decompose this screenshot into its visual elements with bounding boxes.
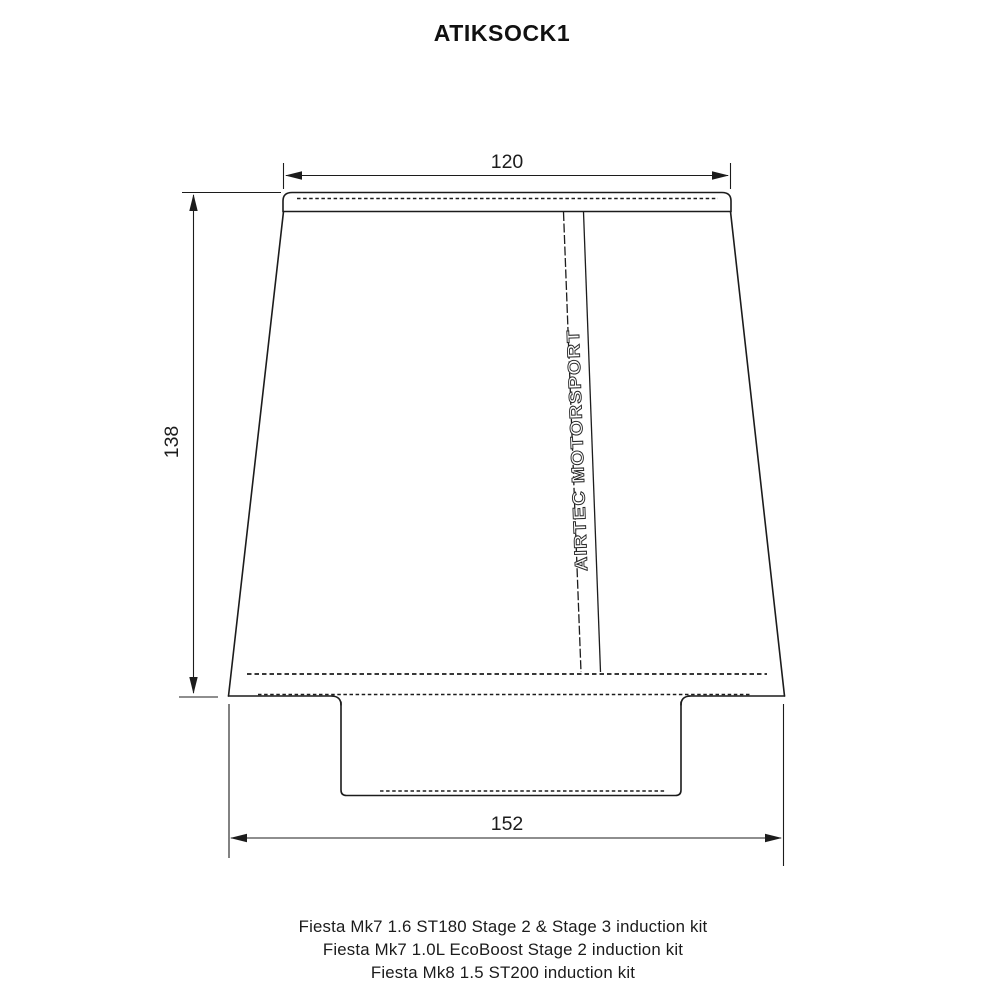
- dimension-base-width: 152: [229, 704, 784, 866]
- fitment-line: Fiesta Mk8 1.5 ST200 induction kit: [371, 963, 635, 982]
- arrow-left-icon: [285, 171, 302, 179]
- brand-strip-label: AIRTEC MOTORSPORT: [563, 329, 591, 572]
- dimension-top-width: 120: [284, 151, 731, 189]
- product-technical-drawing: ATIKSOCK1 AIRTEC MOTORSPORT: [0, 0, 1000, 1000]
- fitment-line: Fiesta Mk7 1.6 ST180 Stage 2 & Stage 3 i…: [299, 917, 708, 936]
- part-number-title: ATIKSOCK1: [434, 20, 571, 46]
- cone-left-edge: [229, 212, 284, 697]
- arrow-right-icon: [712, 171, 729, 179]
- neck-left-fillet: [332, 696, 341, 705]
- neck-collar: [332, 696, 690, 796]
- dimension-top-width-label: 120: [491, 151, 524, 173]
- arrow-up-icon: [189, 194, 197, 211]
- dimension-height: 138: [161, 193, 281, 698]
- neck-right-fillet: [681, 696, 690, 705]
- arrow-left-icon: [230, 834, 247, 842]
- cone-right-edge: [731, 212, 785, 697]
- filter-body: AIRTEC MOTORSPORT: [229, 193, 785, 796]
- arrow-down-icon: [189, 677, 197, 694]
- neck-outline: [341, 702, 681, 796]
- dimension-height-label: 138: [161, 426, 183, 459]
- dimension-base-width-label: 152: [491, 813, 524, 835]
- center-seam-strip: AIRTEC MOTORSPORT: [563, 212, 601, 672]
- arrow-right-icon: [765, 834, 782, 842]
- top-cap-band: [283, 193, 731, 212]
- fitment-line: Fiesta Mk7 1.0L EcoBoost Stage 2 inducti…: [323, 940, 683, 959]
- fitment-list: Fiesta Mk7 1.6 ST180 Stage 2 & Stage 3 i…: [299, 917, 708, 982]
